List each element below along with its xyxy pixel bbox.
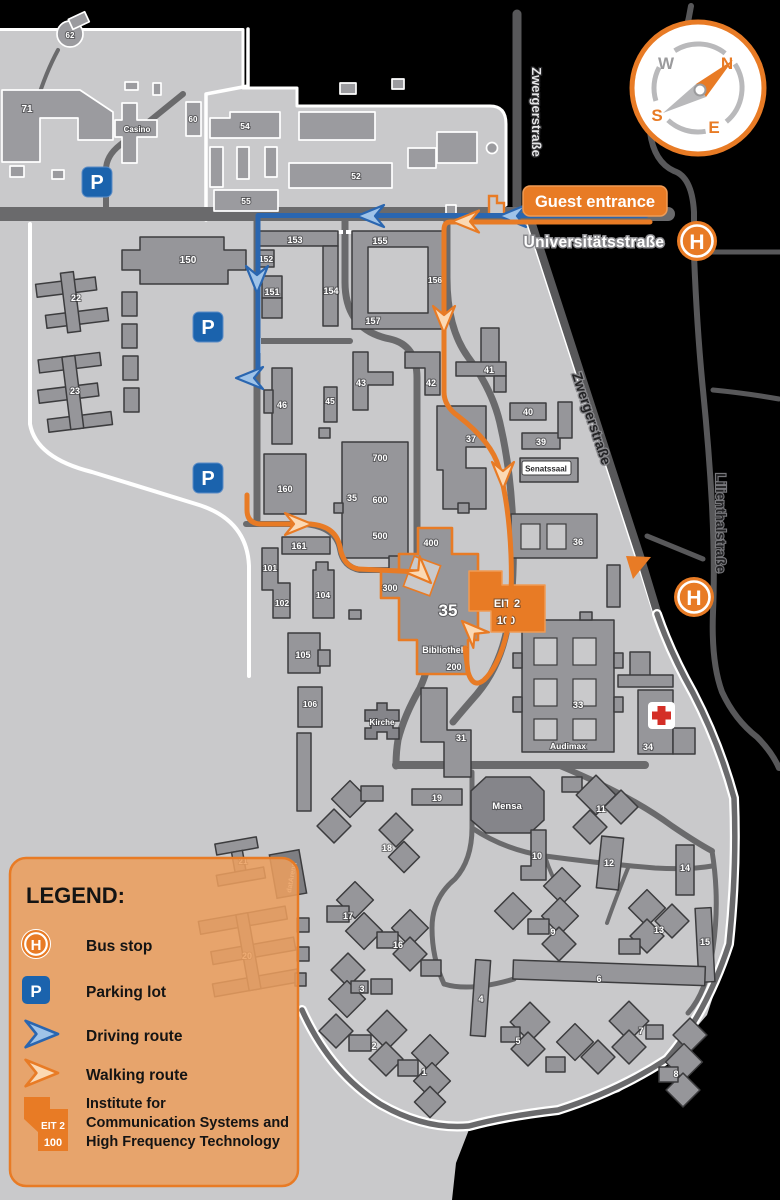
svg-text:7: 7: [638, 1026, 643, 1036]
svg-text:EIT 2: EIT 2: [41, 1121, 65, 1132]
svg-text:35: 35: [439, 601, 458, 620]
building-label: 62: [66, 31, 75, 40]
street-zwergerstrasse-top: Zwergerstraße: [529, 67, 544, 157]
svg-text:37: 37: [466, 434, 476, 444]
building-14: 14: [676, 845, 694, 895]
svg-text:4: 4: [478, 994, 483, 1004]
svg-text:55: 55: [241, 196, 251, 206]
svg-text:11: 11: [596, 804, 606, 814]
svg-text:10: 10: [532, 851, 542, 861]
svg-text:W: W: [658, 54, 675, 73]
svg-text:700: 700: [372, 453, 387, 463]
legend-parking-label: Parking lot: [86, 984, 166, 1001]
svg-text:Mensa: Mensa: [492, 801, 522, 812]
svg-text:5: 5: [515, 1036, 520, 1046]
svg-text:P: P: [30, 982, 41, 1001]
legend-panel: LEGEND: H Bus stop P Parking lot Driving…: [10, 858, 298, 1186]
legend-parking-icon: P: [22, 976, 50, 1004]
legend-institute-line1: Institute for: [86, 1096, 166, 1112]
svg-text:13: 13: [654, 925, 664, 935]
svg-text:106: 106: [303, 699, 317, 709]
svg-text:2: 2: [371, 1041, 376, 1051]
svg-text:Casino: Casino: [124, 125, 151, 134]
building-senatssaal: Senatssaal: [520, 458, 578, 482]
building-40: 40: [510, 403, 546, 420]
bus-stop-icon-east: H: [674, 577, 714, 617]
legend-walking-label: Walking route: [86, 1067, 188, 1084]
svg-text:104: 104: [316, 590, 330, 600]
svg-text:12: 12: [604, 858, 614, 868]
parking-icon-mid: P: [193, 312, 223, 342]
svg-text:18: 18: [382, 843, 392, 853]
svg-text:45: 45: [325, 396, 335, 406]
svg-text:P: P: [201, 317, 214, 339]
svg-text:160: 160: [277, 484, 292, 494]
building-151: 151: [262, 276, 282, 318]
svg-text:155: 155: [372, 236, 387, 246]
building-33-audimax: 33 Audimax: [513, 612, 623, 752]
svg-text:54: 54: [240, 121, 250, 131]
svg-text:156: 156: [428, 275, 442, 285]
building-19: 19: [412, 789, 462, 805]
svg-text:102: 102: [275, 598, 289, 608]
map-canvas: 62 71 Casino 60 54 55 52 150: [0, 0, 780, 1200]
svg-text:300: 300: [382, 583, 397, 593]
svg-text:S: S: [651, 106, 662, 125]
svg-text:42: 42: [426, 378, 436, 388]
svg-text:153: 153: [287, 235, 302, 245]
campus-map: 62 71 Casino 60 54 55 52 150: [0, 0, 780, 1200]
svg-text:39: 39: [536, 437, 546, 447]
building-39: 39: [522, 433, 560, 449]
svg-text:36: 36: [573, 537, 583, 547]
bus-stop-icon-north: H: [677, 221, 717, 261]
svg-text:40: 40: [523, 407, 533, 417]
svg-text:17: 17: [343, 911, 353, 921]
legend-title: LEGEND:: [26, 883, 125, 908]
legend-driving-label: Driving route: [86, 1028, 183, 1045]
medical-cross-icon: [648, 702, 675, 729]
building-60: 60: [186, 102, 201, 136]
street-universitaetsstrasse: Universitätsstraße: [524, 234, 665, 251]
svg-text:1: 1: [421, 1067, 426, 1077]
svg-text:157: 157: [365, 316, 380, 326]
svg-text:200: 200: [446, 662, 461, 672]
building-35-block: 35 700 600 500: [342, 442, 408, 572]
street-lilienthalstrasse: Lilienthalstraße: [713, 473, 728, 573]
building-22-label: 22: [71, 293, 81, 303]
svg-text:600: 600: [372, 495, 387, 505]
svg-text:15: 15: [700, 937, 710, 947]
svg-text:H: H: [686, 587, 701, 610]
svg-text:9: 9: [550, 927, 555, 937]
legend-bus-stop-label: Bus stop: [86, 938, 152, 955]
svg-text:6: 6: [596, 974, 601, 984]
svg-text:52: 52: [351, 171, 361, 181]
building-104: 104: [313, 562, 334, 618]
svg-text:400: 400: [423, 538, 438, 548]
svg-text:Kirche: Kirche: [370, 718, 395, 727]
svg-text:41: 41: [484, 365, 494, 375]
svg-text:H: H: [689, 231, 704, 254]
building-mensa: Mensa: [471, 777, 544, 833]
building-12: 12: [596, 836, 623, 890]
building-160: 160: [264, 454, 306, 514]
svg-text:500: 500: [372, 531, 387, 541]
guest-entrance-banner: Guest entrance: [523, 186, 667, 216]
building-161: 161: [282, 537, 330, 554]
svg-text:161: 161: [291, 541, 306, 551]
svg-text:46: 46: [277, 400, 287, 410]
svg-text:16: 16: [393, 940, 403, 950]
svg-text:Bibliothek: Bibliothek: [422, 645, 466, 655]
svg-text:3: 3: [359, 984, 364, 994]
legend-bus-stop-icon: H: [22, 930, 51, 959]
svg-text:Guest entrance: Guest entrance: [535, 193, 655, 211]
building-52: 52: [289, 163, 392, 188]
compass-rose-icon: N E S W: [632, 22, 764, 154]
building-23-label: 23: [70, 386, 80, 396]
svg-text:60: 60: [189, 115, 198, 124]
svg-text:154: 154: [323, 286, 338, 296]
building-55: 55: [214, 190, 278, 211]
legend-institute-line3: High Frequency Technology: [86, 1134, 280, 1150]
svg-text:Audimax: Audimax: [550, 741, 586, 751]
svg-text:105: 105: [295, 650, 310, 660]
parking-icon-north: P: [82, 167, 112, 197]
svg-text:34: 34: [643, 742, 653, 752]
svg-text:P: P: [90, 172, 103, 194]
svg-text:71: 71: [21, 104, 33, 115]
building-106: 106: [298, 687, 322, 727]
svg-text:H: H: [31, 937, 42, 954]
svg-text:Senatssaal: Senatssaal: [525, 465, 567, 474]
building-36: 36: [511, 514, 597, 558]
svg-text:P: P: [201, 468, 214, 490]
svg-text:100: 100: [44, 1137, 62, 1149]
svg-text:101: 101: [263, 563, 277, 573]
svg-text:E: E: [708, 118, 719, 137]
svg-text:8: 8: [673, 1069, 678, 1079]
svg-text:152: 152: [259, 254, 273, 264]
svg-text:35: 35: [347, 493, 357, 503]
svg-text:150: 150: [180, 255, 197, 266]
svg-text:19: 19: [432, 793, 442, 803]
svg-text:31: 31: [456, 733, 466, 743]
svg-text:14: 14: [680, 863, 690, 873]
svg-text:33: 33: [573, 700, 584, 711]
svg-text:43: 43: [356, 378, 366, 388]
svg-text:EIT 2: EIT 2: [494, 598, 520, 610]
parking-icon-south: P: [193, 463, 223, 493]
legend-institute-line2: Communication Systems and: [86, 1115, 289, 1131]
svg-text:151: 151: [264, 287, 279, 297]
